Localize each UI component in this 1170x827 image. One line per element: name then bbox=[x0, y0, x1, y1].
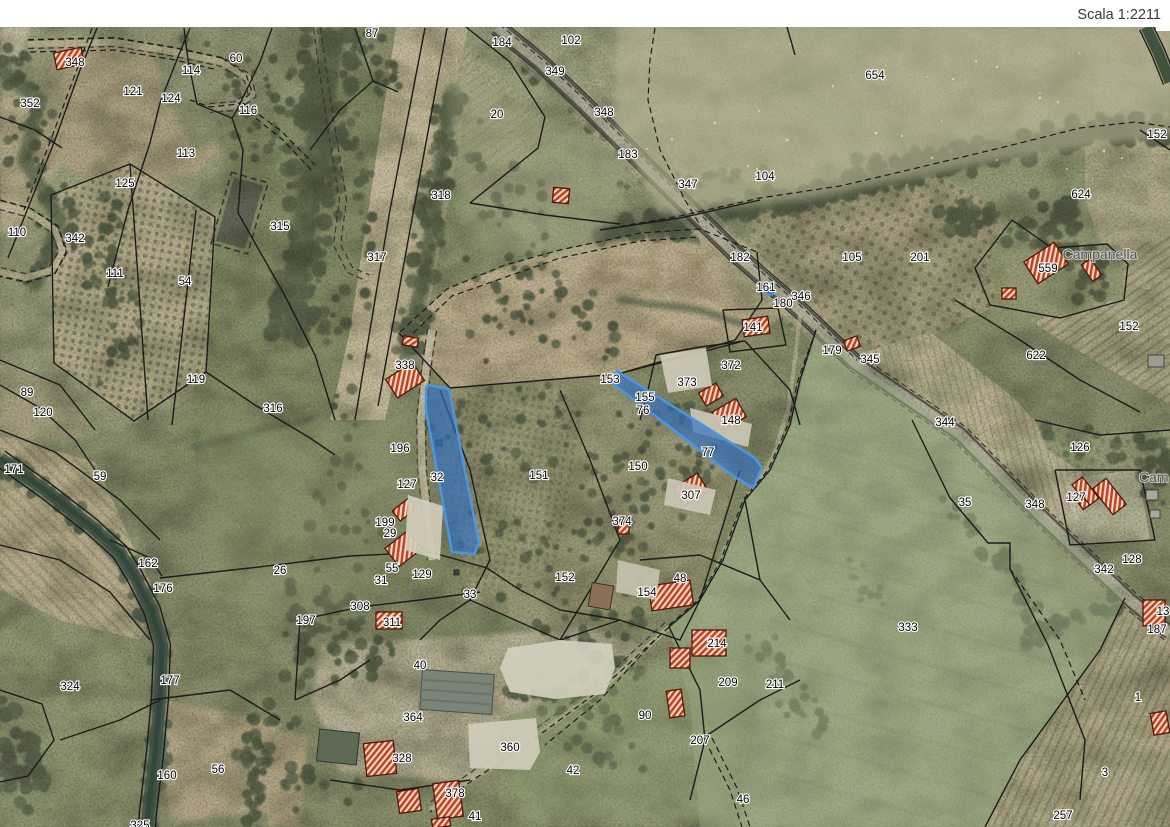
svg-text:87: 87 bbox=[366, 28, 379, 40]
svg-text:3: 3 bbox=[1102, 767, 1108, 779]
svg-text:187: 187 bbox=[1147, 624, 1166, 636]
svg-text:89: 89 bbox=[21, 387, 34, 399]
svg-text:184: 184 bbox=[492, 37, 512, 49]
svg-text:150: 150 bbox=[628, 461, 647, 473]
svg-text:197: 197 bbox=[296, 615, 315, 627]
svg-text:182: 182 bbox=[730, 252, 749, 264]
svg-text:26: 26 bbox=[274, 565, 287, 577]
svg-text:125: 125 bbox=[115, 178, 134, 190]
svg-text:152: 152 bbox=[1119, 321, 1138, 333]
svg-text:176: 176 bbox=[153, 583, 172, 595]
svg-text:349: 349 bbox=[545, 66, 564, 78]
svg-text:110: 110 bbox=[8, 227, 26, 239]
svg-text:40: 40 bbox=[414, 660, 427, 672]
svg-text:31: 31 bbox=[375, 575, 388, 587]
svg-text:60: 60 bbox=[230, 53, 243, 65]
svg-text:121: 121 bbox=[123, 86, 142, 98]
svg-text:114: 114 bbox=[182, 65, 201, 77]
svg-text:364: 364 bbox=[403, 712, 423, 724]
svg-text:124: 124 bbox=[161, 93, 181, 105]
svg-text:372: 372 bbox=[721, 360, 740, 372]
svg-text:104: 104 bbox=[755, 171, 775, 183]
svg-text:374: 374 bbox=[612, 516, 632, 528]
svg-text:141: 141 bbox=[743, 322, 762, 334]
svg-text:160: 160 bbox=[157, 770, 176, 782]
svg-text:48: 48 bbox=[674, 573, 687, 585]
svg-text:76: 76 bbox=[637, 405, 650, 417]
svg-text:20: 20 bbox=[491, 109, 504, 121]
svg-text:55: 55 bbox=[386, 563, 399, 575]
svg-text:333: 333 bbox=[898, 622, 917, 634]
svg-text:35: 35 bbox=[959, 497, 972, 509]
svg-text:209: 209 bbox=[718, 677, 737, 689]
svg-text:59: 59 bbox=[94, 471, 107, 483]
svg-text:127: 127 bbox=[1066, 492, 1085, 504]
svg-text:338: 338 bbox=[395, 360, 414, 372]
svg-text:Cam: Cam bbox=[1139, 469, 1169, 485]
svg-text:201: 201 bbox=[910, 252, 929, 264]
svg-text:46: 46 bbox=[737, 794, 750, 806]
svg-text:161: 161 bbox=[756, 282, 775, 294]
svg-text:Scala 1:2211: Scala 1:2211 bbox=[1077, 7, 1161, 23]
svg-text:111: 111 bbox=[106, 268, 123, 280]
svg-text:105: 105 bbox=[842, 252, 861, 264]
svg-text:316: 316 bbox=[263, 403, 282, 415]
svg-text:344: 344 bbox=[935, 417, 955, 429]
svg-text:42: 42 bbox=[567, 765, 580, 777]
svg-text:315: 315 bbox=[270, 221, 289, 233]
svg-text:116: 116 bbox=[239, 105, 257, 117]
svg-text:128: 128 bbox=[1122, 554, 1141, 566]
svg-text:90: 90 bbox=[639, 710, 652, 722]
svg-text:352: 352 bbox=[20, 98, 39, 110]
svg-text:152: 152 bbox=[1147, 129, 1166, 141]
svg-text:56: 56 bbox=[212, 764, 225, 776]
svg-text:29: 29 bbox=[384, 528, 397, 540]
svg-text:317: 317 bbox=[367, 252, 386, 264]
svg-text:180: 180 bbox=[773, 298, 792, 310]
svg-text:345: 345 bbox=[860, 354, 879, 366]
svg-text:113: 113 bbox=[177, 148, 195, 160]
svg-text:148: 148 bbox=[721, 415, 740, 427]
svg-text:624: 624 bbox=[1071, 189, 1091, 201]
svg-text:120: 120 bbox=[33, 407, 52, 419]
svg-text:129: 129 bbox=[412, 569, 431, 581]
svg-text:154: 154 bbox=[637, 587, 657, 599]
svg-text:153: 153 bbox=[600, 374, 619, 386]
svg-text:257: 257 bbox=[1053, 810, 1072, 822]
svg-text:211: 211 bbox=[766, 679, 784, 691]
svg-text:41: 41 bbox=[469, 811, 482, 823]
svg-text:348: 348 bbox=[594, 107, 613, 119]
svg-text:348: 348 bbox=[1025, 499, 1044, 511]
svg-text:102: 102 bbox=[561, 35, 580, 47]
svg-text:152: 152 bbox=[555, 572, 574, 584]
svg-text:328: 328 bbox=[392, 753, 411, 765]
svg-text:177: 177 bbox=[160, 675, 179, 687]
svg-text:342: 342 bbox=[65, 233, 84, 245]
svg-text:559: 559 bbox=[1038, 263, 1057, 275]
svg-text:378: 378 bbox=[445, 788, 464, 800]
svg-text:119: 119 bbox=[187, 374, 205, 386]
svg-text:214: 214 bbox=[707, 638, 727, 650]
svg-text:162: 162 bbox=[138, 558, 157, 570]
svg-text:307: 307 bbox=[681, 490, 700, 502]
svg-text:308: 308 bbox=[350, 601, 369, 613]
svg-text:126: 126 bbox=[1070, 442, 1089, 454]
svg-text:1: 1 bbox=[1135, 692, 1141, 704]
svg-text:360: 360 bbox=[500, 742, 519, 754]
svg-text:654: 654 bbox=[865, 70, 885, 82]
svg-text:127: 127 bbox=[397, 479, 416, 491]
svg-text:77: 77 bbox=[702, 447, 715, 459]
svg-text:196: 196 bbox=[390, 443, 409, 455]
svg-text:32: 32 bbox=[431, 472, 444, 484]
svg-text:183: 183 bbox=[618, 149, 637, 161]
svg-text:155: 155 bbox=[635, 392, 654, 404]
svg-text:171: 171 bbox=[4, 464, 23, 476]
svg-text:33: 33 bbox=[464, 589, 477, 601]
svg-text:348: 348 bbox=[65, 57, 84, 69]
svg-text:324: 324 bbox=[60, 681, 80, 693]
svg-text:13: 13 bbox=[1157, 606, 1170, 618]
svg-text:151: 151 bbox=[529, 470, 548, 482]
svg-text:179: 179 bbox=[822, 345, 841, 357]
svg-text:346: 346 bbox=[791, 291, 810, 303]
svg-text:54: 54 bbox=[179, 276, 192, 288]
svg-text:622: 622 bbox=[1026, 350, 1045, 362]
svg-text:311: 311 bbox=[383, 617, 401, 629]
svg-text:347: 347 bbox=[678, 179, 697, 191]
svg-text:342: 342 bbox=[1094, 564, 1113, 576]
svg-text:318: 318 bbox=[431, 190, 450, 202]
svg-text:373: 373 bbox=[677, 377, 696, 389]
svg-text:Campanella: Campanella bbox=[1063, 246, 1138, 262]
svg-text:207: 207 bbox=[690, 735, 709, 747]
svg-text:325: 325 bbox=[130, 820, 149, 827]
